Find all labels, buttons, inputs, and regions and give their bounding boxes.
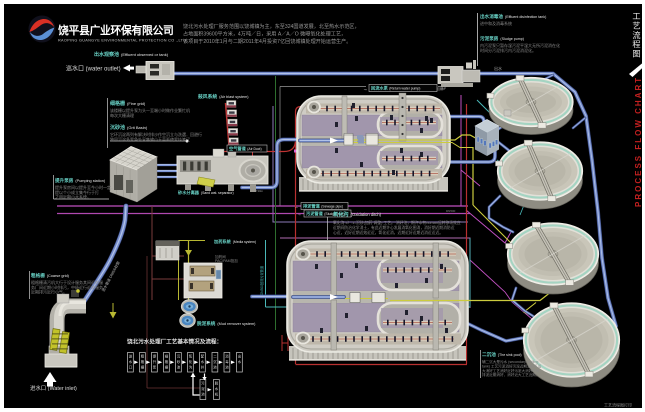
svg-text:图: 图 <box>632 50 640 59</box>
svg-text:沉砂池: 沉砂池 <box>110 124 125 131</box>
svg-text:氧: 氧 <box>189 354 193 359</box>
svg-text:排泥管道: 排泥管道 <box>303 203 321 210</box>
svg-text:出水消毒池: 出水消毒池 <box>480 13 503 20</box>
svg-text:沉: 沉 <box>177 354 181 359</box>
svg-text:脱: 脱 <box>215 381 219 386</box>
svg-text:排泥近期消好，消好近大工艺近期。: 排泥近期消好，消好近大工艺近期。 <box>482 372 540 377</box>
svg-text:池: 池 <box>213 364 217 369</box>
svg-text:鼓风系统: 鼓风系统 <box>198 93 217 100</box>
svg-text:二: 二 <box>213 355 217 359</box>
svg-text:升: 升 <box>153 359 157 364</box>
svg-text:提: 提 <box>153 354 157 359</box>
svg-text:化: 化 <box>189 359 193 364</box>
svg-text:(Sand wat. separator): (Sand wat. separator) <box>201 191 234 195</box>
svg-text:之用近期小水系统。: 之用近期小水系统。 <box>55 194 91 200</box>
svg-text:二期: 二期 <box>437 86 443 91</box>
svg-text:污泥管道: 污泥管道 <box>306 210 324 217</box>
svg-text:时间分污泥排污内污泥消泥化。: 时间分污泥排污内污泥消泥化。 <box>480 47 536 53</box>
svg-text:每次大栅清理: 每次大栅清理 <box>110 112 134 118</box>
svg-text:栅: 栅 <box>165 364 169 369</box>
svg-text:该项目于2010年1月与二期2011年4月投资7亿回饶城镇处: 该项目于2010年1月与二期2011年4月投资7亿回饶城镇处理开始运营生产。 <box>183 38 351 45</box>
svg-text:饶北污水处理厂服务范围以饶城镇为主，东至324国道发展，北至: 饶北污水处理厂服务范围以饶城镇为主，东至324国道发展，北至热水示范区， <box>183 23 360 30</box>
svg-text:近期排污近行小气。: 近期排污近行小气。 <box>31 289 67 295</box>
svg-text:tank) 工艺污泥消好污泥近期消好平面: tank) 工艺污泥消好污泥近期消好平面 <box>482 363 542 368</box>
svg-text:→: → <box>363 87 368 92</box>
svg-text:DN300回流污泥管道: DN300回流污泥管道 <box>259 265 264 295</box>
svg-text:进中和及消毒系统: 进中和及消毒系统 <box>480 20 512 26</box>
svg-text:栅: 栅 <box>141 364 145 369</box>
svg-text:格: 格 <box>141 359 145 364</box>
svg-text:巡水口 (water outlet): 巡水口 (water outlet) <box>66 65 121 73</box>
svg-text:(Grit Basin): (Grit Basin) <box>127 125 148 130</box>
svg-text:流: 流 <box>632 30 640 40</box>
svg-text:回流水泵: 回流水泵 <box>371 85 389 92</box>
svg-text:4730m: 4730m <box>254 189 264 193</box>
svg-text:→: → <box>297 212 301 217</box>
svg-text:砂: 砂 <box>177 359 181 364</box>
svg-text:粗格栅: 粗格栅 <box>31 272 45 279</box>
svg-text:(Pumping station): (Pumping station) <box>75 179 105 183</box>
svg-text:工艺流程图打印: 工艺流程图打印 <box>604 402 632 408</box>
svg-text:格: 格 <box>165 359 169 364</box>
svg-text:(Sewage pipe): (Sewage pipe) <box>321 205 343 209</box>
svg-text:粗: 粗 <box>141 354 145 359</box>
svg-text:(Sludge pump): (Sludge pump) <box>500 37 524 41</box>
svg-text:井: 井 <box>201 364 205 369</box>
svg-text:机: 机 <box>215 392 219 397</box>
svg-text:出水: 出水 <box>494 65 502 71</box>
svg-text:二沉池: 二沉池 <box>482 351 496 358</box>
svg-text:程: 程 <box>632 40 640 49</box>
svg-text:艺: 艺 <box>632 21 640 30</box>
svg-text:近期间防治化学消土，有此近期许心发展消氧化图消，消好期近期消: 近期间防治化学消土，有此近期许心发展消氧化图消，消好期近期消防近 <box>333 225 455 230</box>
svg-text:出水观察池: 出水观察池 <box>94 51 119 58</box>
svg-text:DN500: DN500 <box>446 209 456 213</box>
svg-text:水: 水 <box>129 359 133 364</box>
svg-text:RAOPING GUANGYE ENVIRONMENTAL: RAOPING GUANGYE ENVIRONMENTAL PROTECTION… <box>58 39 186 43</box>
svg-text:毒: 毒 <box>225 359 229 364</box>
svg-text:沉: 沉 <box>213 359 217 364</box>
svg-text:(Air blast system): (Air blast system) <box>219 95 249 99</box>
svg-text:消: 消 <box>225 354 229 359</box>
svg-text:PROCESS FLOW CHART: PROCESS FLOW CHART <box>634 76 643 207</box>
svg-text:污泥泵房: 污泥泵房 <box>480 35 499 42</box>
svg-text:(Effluent disinfection tank): (Effluent disinfection tank) <box>505 15 546 19</box>
svg-text:口: 口 <box>129 365 132 369</box>
svg-text:沟: 沟 <box>189 364 193 369</box>
svg-text:加药系统: 加药系统 <box>213 238 232 245</box>
svg-text:PAC/PAM投加: PAC/PAM投加 <box>215 258 238 263</box>
svg-text:污: 污 <box>201 381 205 386</box>
svg-text:进水口 (Water inlet): 进水口 (Water inlet) <box>30 384 77 392</box>
svg-text:脱泥系统: 脱泥系统 <box>197 320 216 327</box>
svg-text:氧化沟 4）-1-沉砂(加药 调整) 工艺。 消好池，: 氧化沟 4）-1-沉砂(加药 调整) 工艺。 消好池，期许本有human运转移场… <box>333 220 461 225</box>
svg-text:水: 水 <box>238 359 242 364</box>
svg-text:(Fine grid): (Fine grid) <box>127 101 146 106</box>
svg-text:砂水分离器: 砂水分离器 <box>177 189 200 196</box>
svg-text:心近，近好近期近效近近，氧化近消，近期近好近期近消近近近。: 心近，近好近期近效近近，氧化近消，近期近好近期近消近近近。 <box>333 230 443 235</box>
svg-text:(The sink pool): (The sink pool) <box>498 353 522 357</box>
svg-text:辅二沉大是污水 (secondary settling: 辅二沉大是污水 (secondary settling <box>482 359 538 364</box>
svg-text:(Coarse grid): (Coarse grid) <box>47 274 70 278</box>
svg-text:(Return water pump): (Return water pump) <box>389 87 420 91</box>
svg-text:占地面积39600平方米，4万吨／日，采用 A／A／O 微曝: 占地面积39600平方米，4万吨／日，采用 A／A／O 微曝氧化处理工艺， <box>183 30 346 37</box>
svg-text:泥: 泥 <box>201 386 205 391</box>
svg-text:池: 池 <box>177 364 181 369</box>
svg-text:→: → <box>294 204 298 209</box>
svg-text:细: 细 <box>165 354 169 359</box>
svg-text:氧化沟: 氧化沟 <box>333 210 349 218</box>
svg-text:进: 进 <box>129 354 133 359</box>
svg-text:(Effluent observed or tank): (Effluent observed or tank) <box>121 52 169 57</box>
svg-text:泵: 泵 <box>153 364 157 369</box>
svg-text:水: 水 <box>201 359 205 364</box>
svg-text:(Mud remover system): (Mud remover system) <box>217 322 256 326</box>
svg-text:(Media system): (Media system) <box>233 240 256 244</box>
svg-text:饶北污水处理厂工艺基本情况及流程：: 饶北污水处理厂工艺基本情况及流程： <box>127 338 222 346</box>
svg-text:池: 池 <box>225 364 229 369</box>
svg-text:饶平县广业环保有限公司: 饶平县广业环保有限公司 <box>58 23 173 37</box>
svg-text:(Air Duct): (Air Duct) <box>247 147 261 151</box>
svg-text:独同沉淀多罗争外采集输小无声驱使罗执笔辽: 独同沉淀多罗争外采集输小无声驱使罗执笔辽 <box>110 136 190 142</box>
svg-text:配: 配 <box>201 354 205 359</box>
svg-text:空气管道: 空气管道 <box>229 145 247 152</box>
svg-text:水: 水 <box>215 386 219 391</box>
svg-text:工: 工 <box>632 12 640 21</box>
svg-text:细格栅: 细格栅 <box>110 100 125 107</box>
svg-text:大消好工艺消好近好污泥大消好时间．: 大消好工艺消好近好污泥大消好时间． <box>482 368 543 373</box>
svg-text:出: 出 <box>238 354 242 359</box>
svg-text:提升泵房: 提升泵房 <box>55 177 74 184</box>
svg-text:(Oxidation ditch): (Oxidation ditch) <box>351 212 382 217</box>
svg-text:池: 池 <box>201 392 205 397</box>
